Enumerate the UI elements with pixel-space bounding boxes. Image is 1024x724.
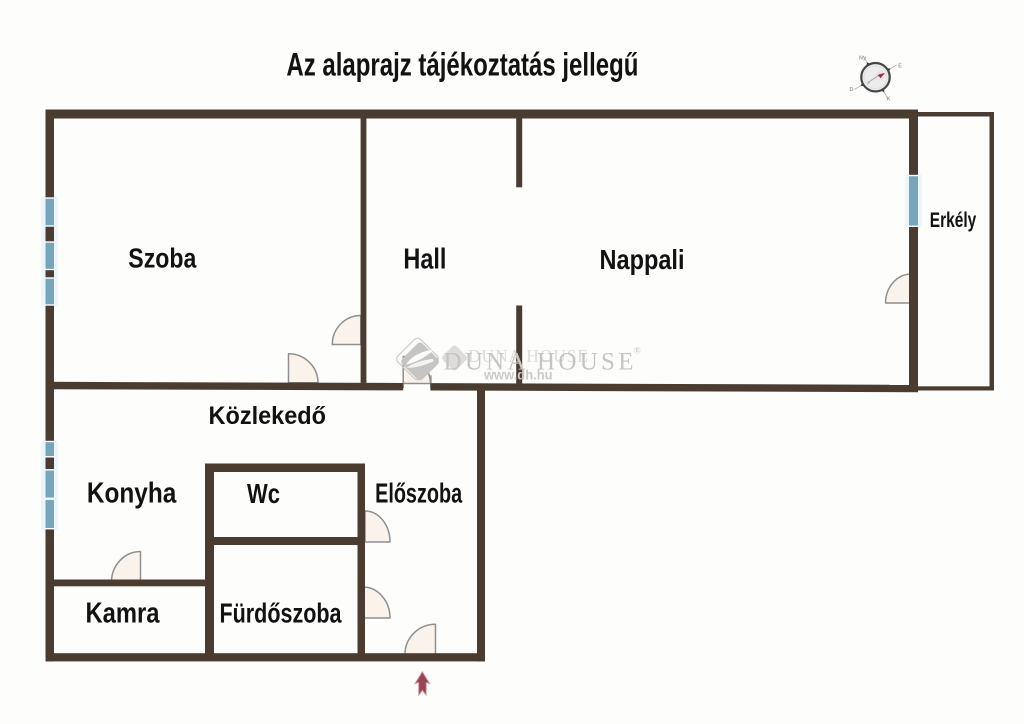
svg-text:Előszoba: Előszoba [375, 477, 462, 508]
svg-text:D: D [850, 87, 854, 93]
svg-text:Szoba: Szoba [128, 243, 196, 274]
svg-text:É: É [898, 62, 902, 70]
svg-text:®: ® [634, 346, 641, 357]
svg-text:Nappali: Nappali [600, 244, 685, 275]
svg-text:Erkély: Erkély [930, 209, 977, 232]
svg-text:Konyha: Konyha [87, 477, 177, 509]
svg-text:Wc: Wc [247, 478, 280, 509]
svg-text:Hall: Hall [403, 244, 446, 276]
svg-text:Ny: Ny [859, 56, 867, 62]
svg-text:Fürdőszoba: Fürdőszoba [220, 597, 343, 628]
svg-text:www.dh.hu: www.dh.hu [483, 367, 552, 383]
svg-text:Kamra: Kamra [86, 597, 161, 629]
svg-text:Az alaprajz tájékoztatás jelle: Az alaprajz tájékoztatás jellegű [286, 46, 638, 82]
svg-text:Közlekedő: Közlekedő [209, 402, 327, 430]
svg-text:K: K [887, 97, 891, 103]
